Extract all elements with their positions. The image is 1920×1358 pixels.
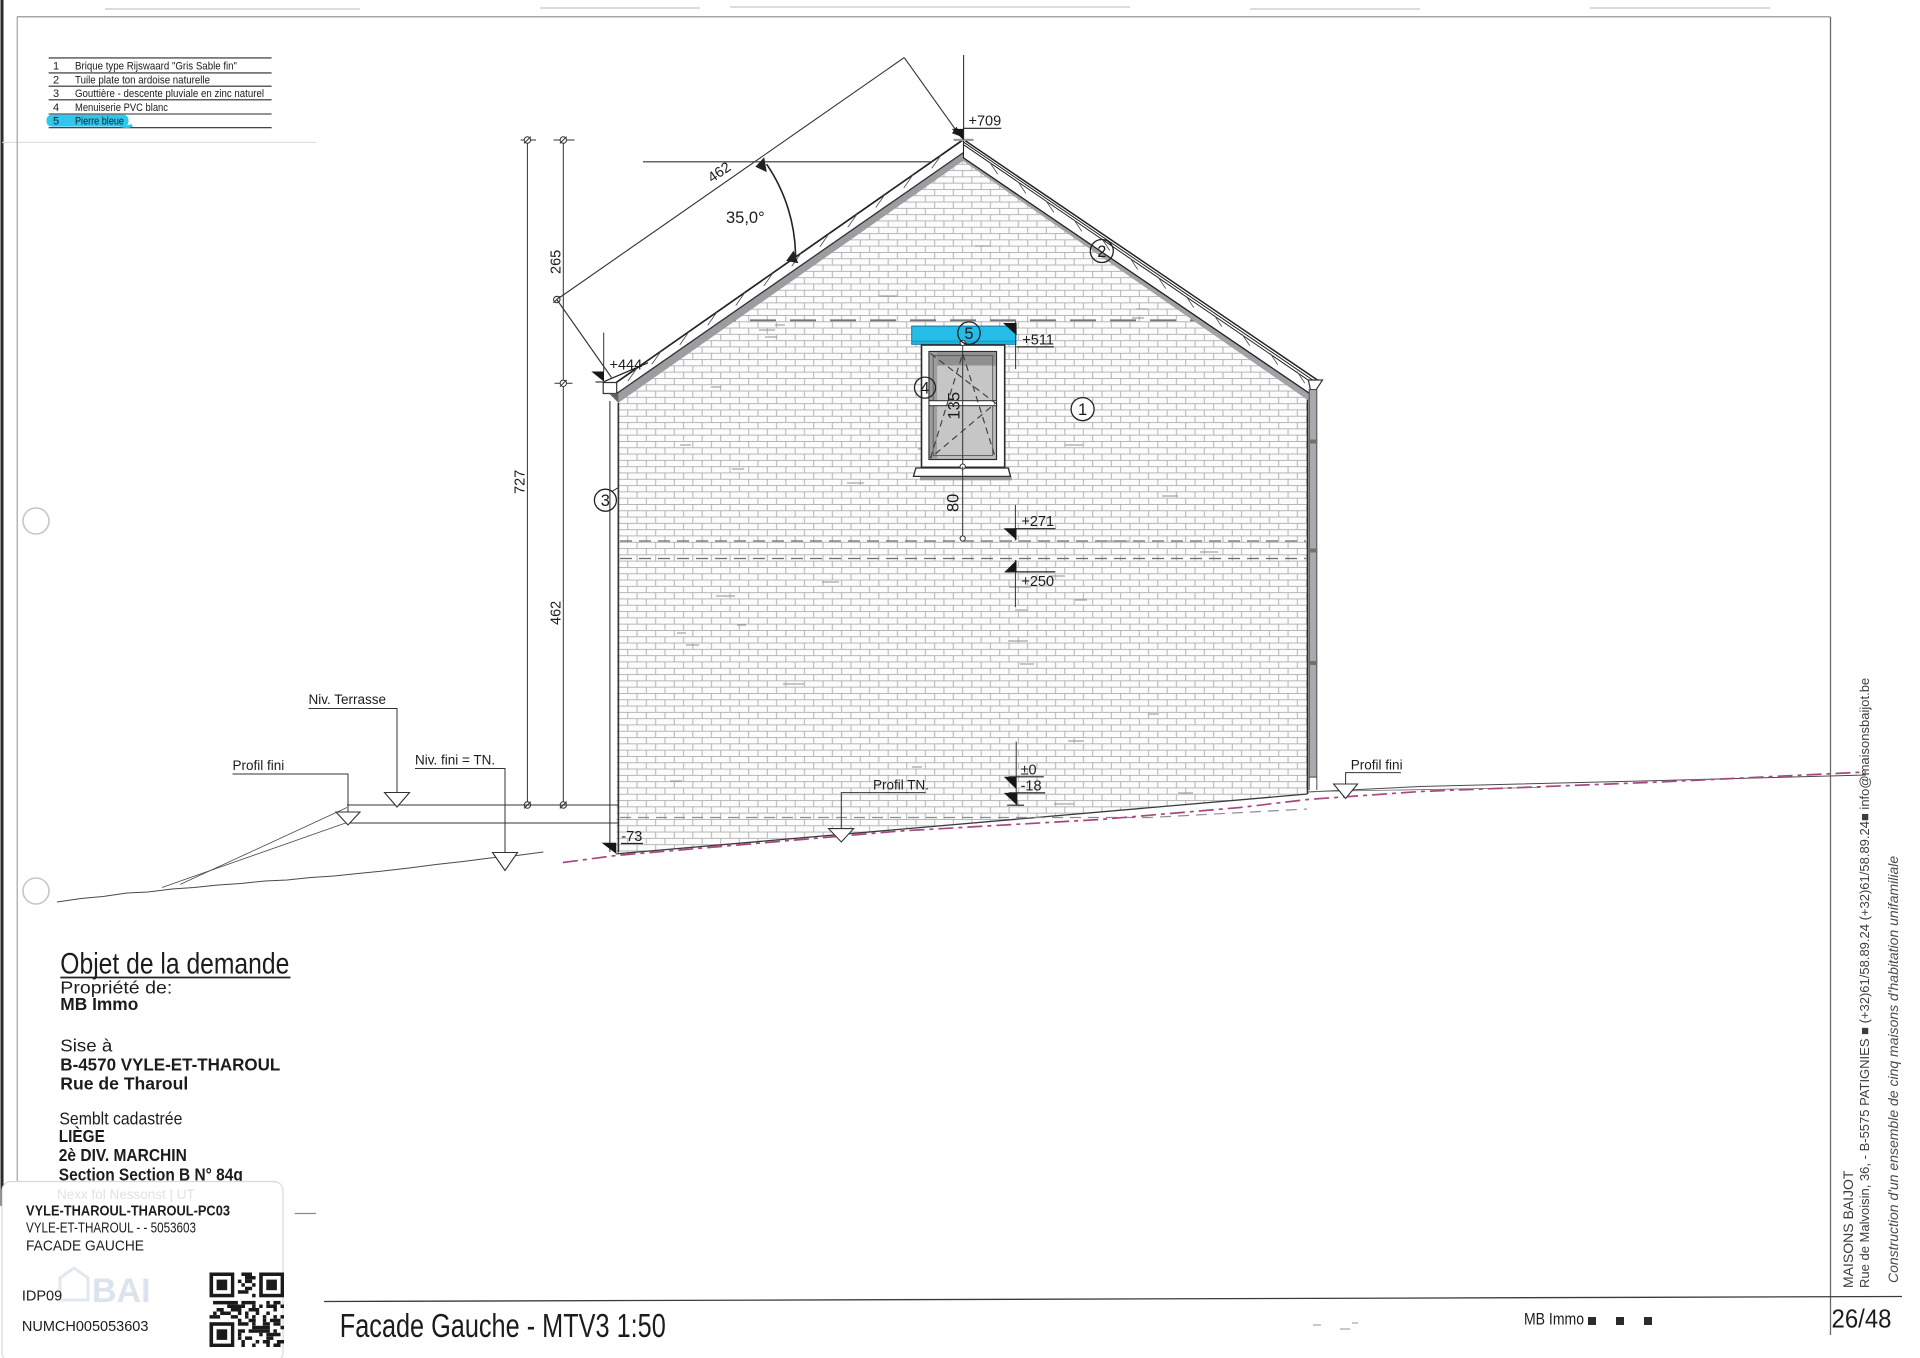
svg-text:Rue de Tharoul: Rue de Tharoul — [60, 1074, 188, 1094]
svg-text:BAI: BAI — [92, 1272, 151, 1310]
svg-text:Menuiserie PVC blanc: Menuiserie PVC blanc — [75, 102, 168, 114]
svg-text:VYLE-THAROUL-THAROUL-PC03: VYLE-THAROUL-THAROUL-PC03 — [26, 1203, 230, 1220]
svg-text:3: 3 — [53, 88, 59, 100]
svg-text:+444: +444 — [610, 357, 643, 373]
svg-text:Niv. fini = TN.: Niv. fini = TN. — [415, 753, 495, 768]
svg-text:MAISONS BAIJOT: MAISONS BAIJOT — [1840, 1170, 1856, 1288]
svg-text:FACADE GAUCHE: FACADE GAUCHE — [26, 1238, 144, 1255]
svg-text:4: 4 — [920, 379, 929, 397]
svg-text:Rue de Malvoisin, 36, - B-5575: Rue de Malvoisin, 36, - B-5575 PATIGNIES… — [1857, 678, 1872, 1288]
svg-text:VYLE-ET-THAROUL - - 5053603: VYLE-ET-THAROUL - - 5053603 — [26, 1220, 196, 1237]
svg-text:Profil fini: Profil fini — [233, 758, 285, 773]
svg-text:-73: -73 — [621, 829, 642, 845]
svg-text:462: 462 — [549, 601, 565, 625]
svg-text:Profil TN.: Profil TN. — [873, 778, 929, 793]
svg-text:2: 2 — [1097, 243, 1106, 261]
svg-text:+250: +250 — [1021, 574, 1054, 590]
svg-text:IDP09: IDP09 — [22, 1289, 62, 1305]
svg-text:MB Immo: MB Immo — [60, 994, 138, 1014]
svg-text:3: 3 — [601, 492, 610, 510]
svg-text:Brique type Rijswaard "Gris Sa: Brique type Rijswaard "Gris Sable fin" — [75, 61, 237, 73]
svg-text:LIÈGE: LIÈGE — [59, 1125, 105, 1146]
svg-text:727: 727 — [513, 470, 529, 494]
svg-text:B-4570 VYLE-ET-THAROUL: B-4570 VYLE-ET-THAROUL — [60, 1055, 280, 1075]
svg-text:+271: +271 — [1021, 514, 1054, 530]
svg-text:265: 265 — [549, 250, 565, 274]
svg-text:Pierre bleue: Pierre bleue — [75, 116, 124, 128]
svg-text:Tuile plate ton ardoise natur: Tuile plate ton ardoise naturelle — [75, 74, 210, 86]
svg-text:Facade Gauche - MTV3 1:50: Facade Gauche - MTV3 1:50 — [340, 1307, 666, 1344]
svg-text:Construction d'un ensemble de: Construction d'un ensemble de cinq maiso… — [1885, 856, 1901, 1283]
svg-text:Niv. Terrasse: Niv. Terrasse — [309, 692, 387, 707]
svg-text:MB Immo: MB Immo — [1524, 1311, 1584, 1329]
svg-text:462: 462 — [705, 159, 734, 186]
svg-text:+709: +709 — [969, 114, 1002, 130]
svg-text:80: 80 — [945, 494, 963, 512]
svg-text:NUMCH005053603: NUMCH005053603 — [22, 1319, 149, 1335]
svg-text:5: 5 — [53, 116, 59, 128]
svg-text:4: 4 — [53, 102, 59, 114]
svg-text:±0: ±0 — [1021, 762, 1037, 778]
svg-text:35,0°: 35,0° — [726, 209, 765, 227]
svg-text:Nexx fol Nessonst | UT: Nexx fol Nessonst | UT — [57, 1187, 195, 1202]
svg-text:1: 1 — [1078, 401, 1087, 419]
svg-text:-18: -18 — [1021, 779, 1042, 795]
svg-text:Profil fini: Profil fini — [1351, 758, 1403, 773]
svg-text:26/48: 26/48 — [1832, 1304, 1892, 1334]
svg-text:2: 2 — [53, 74, 59, 86]
svg-text:135: 135 — [946, 392, 964, 420]
svg-text:1: 1 — [53, 61, 59, 73]
svg-text:Sise à: Sise à — [60, 1036, 112, 1056]
svg-text:5: 5 — [964, 325, 973, 343]
svg-text:Objet de la demande: Objet de la demande — [60, 948, 289, 981]
svg-text:Gouttière - descente pluviale: Gouttière - descente pluviale en zinc na… — [75, 88, 264, 100]
svg-text:2è DIV. MARCHIN: 2è DIV. MARCHIN — [59, 1145, 187, 1165]
svg-text:+511: +511 — [1022, 333, 1054, 349]
